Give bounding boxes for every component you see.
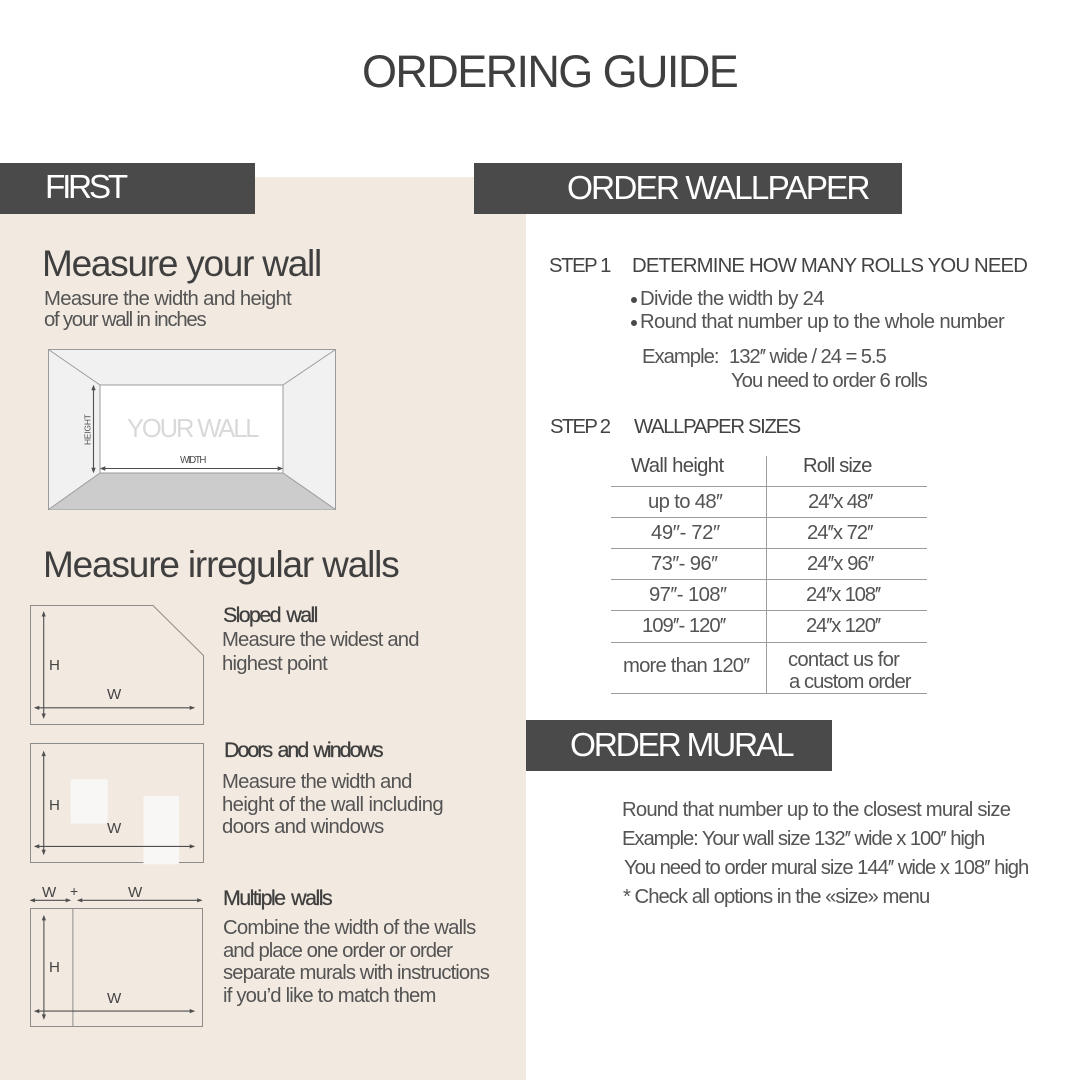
svg-text:HEIGHT: HEIGHT — [83, 414, 93, 445]
